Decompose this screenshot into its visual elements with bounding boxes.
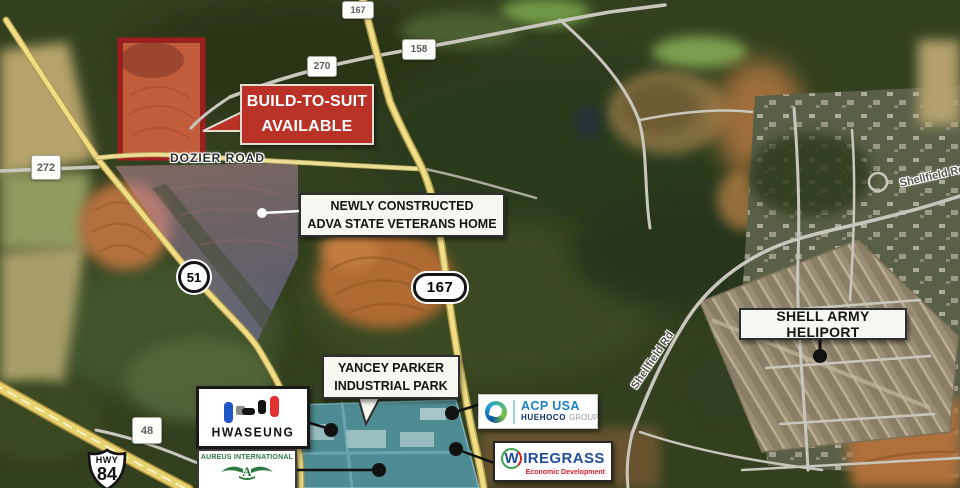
acp-dot <box>445 406 459 420</box>
acp-swirl-icon <box>485 401 507 423</box>
acp-name: ACP USA <box>521 400 598 414</box>
hwaseung-logo-icon <box>222 396 284 423</box>
aureus-monogram: A <box>219 464 275 480</box>
veterans-home-line1: NEWLY CONSTRUCTED <box>330 197 473 215</box>
wiregrass-tagline: Economic Development <box>526 469 605 476</box>
route-167-shield-top: 167 <box>342 1 374 19</box>
industrial-park-line1: YANCEY PARKER <box>338 359 444 377</box>
group-label: GROUP <box>569 413 598 422</box>
route-270-shield: 270 <box>307 56 337 77</box>
aureus-wings-icon: A <box>219 462 275 482</box>
huehoco-label: HUEHOCO <box>521 413 566 422</box>
heliport-label: SHELL ARMY HELIPORT <box>741 308 905 340</box>
veterans-home-callout: NEWLY CONSTRUCTED ADVA STATE VETERANS HO… <box>299 193 505 237</box>
wiregrass-logo-box: WIREGRASS Economic Development <box>493 441 613 482</box>
dozier-road-label: DOZIER ROAD <box>170 151 265 165</box>
route-158-shield: 158 <box>402 39 436 60</box>
hwaseung-dot <box>324 423 338 437</box>
route-167-shield-mid: 167 <box>413 273 467 302</box>
wiregrass-name-rest: IREGRASS <box>523 451 605 466</box>
heliport-dot <box>813 349 827 363</box>
route-272-shield: 272 <box>31 155 61 180</box>
wiregrass-name: WIREGRASS <box>501 448 605 469</box>
hwaseung-logo-box: HWASEUNG <box>196 386 310 449</box>
us-84-number: 84 <box>87 464 127 485</box>
build-to-suit-line2: AVAILABLE <box>262 115 353 140</box>
veterans-home-dot <box>257 208 267 218</box>
route-48-shield: 48 <box>132 417 162 444</box>
acp-divider <box>513 400 515 424</box>
route-51-shield: 51 <box>178 261 210 293</box>
build-to-suit-line1: BUILD-TO-SUIT <box>247 90 368 115</box>
aerial-site-map: 167 158 270 272 51 167 48 HWY 84 DOZIER … <box>0 0 960 488</box>
wiregrass-dot <box>449 442 463 456</box>
aureus-logo-box: AUREUS INTERNATIONAL A <box>197 449 297 488</box>
aureus-name: AUREUS INTERNATIONAL <box>201 454 293 461</box>
industrial-park-line2: INDUSTRIAL PARK <box>334 377 447 395</box>
build-to-suit-callout: BUILD-TO-SUIT AVAILABLE <box>240 84 374 145</box>
hwaseung-name: HWASEUNG <box>212 424 295 439</box>
veterans-home-line2: ADVA STATE VETERANS HOME <box>307 215 496 233</box>
industrial-park-callout: YANCEY PARKER INDUSTRIAL PARK <box>322 355 460 399</box>
heliport-callout: SHELL ARMY HELIPORT <box>739 308 907 340</box>
build-to-suit-parcel <box>120 40 203 158</box>
wiregrass-w-circle-icon: W <box>501 448 522 469</box>
acp-logo-box: ACP USA HUEHOCOGROUP <box>478 394 598 429</box>
us-84-shield: HWY 84 <box>87 445 127 488</box>
aureus-dot <box>372 463 386 477</box>
